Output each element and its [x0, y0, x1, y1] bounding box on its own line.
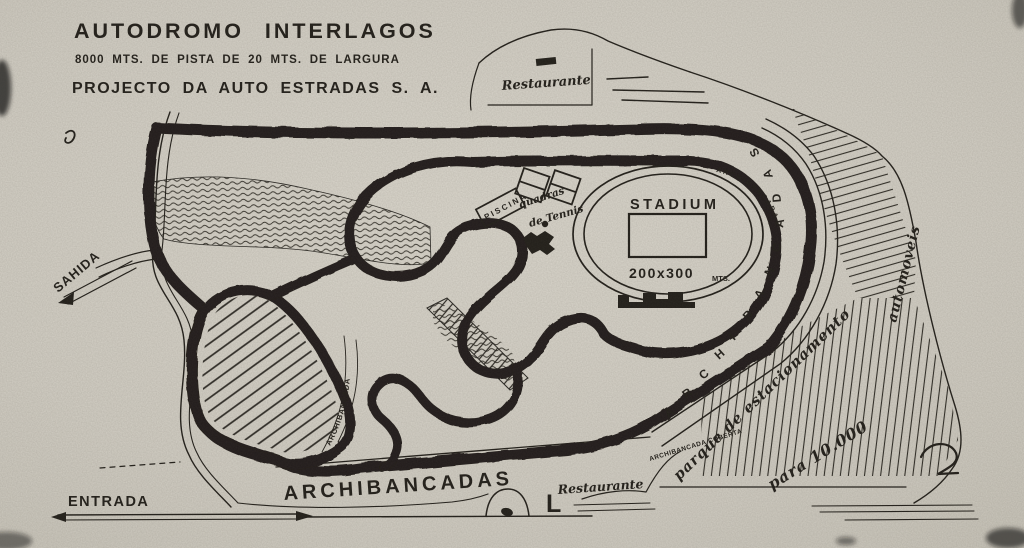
paper-grain-overlay: [0, 0, 1024, 548]
map-page: PISCINA AUTODROMO INTERLAGOS 8000 MTS. D…: [0, 0, 1024, 548]
interlagos-map: PISCINA AUTODROMO INTERLAGOS 8000 MTS. D…: [0, 0, 1024, 548]
